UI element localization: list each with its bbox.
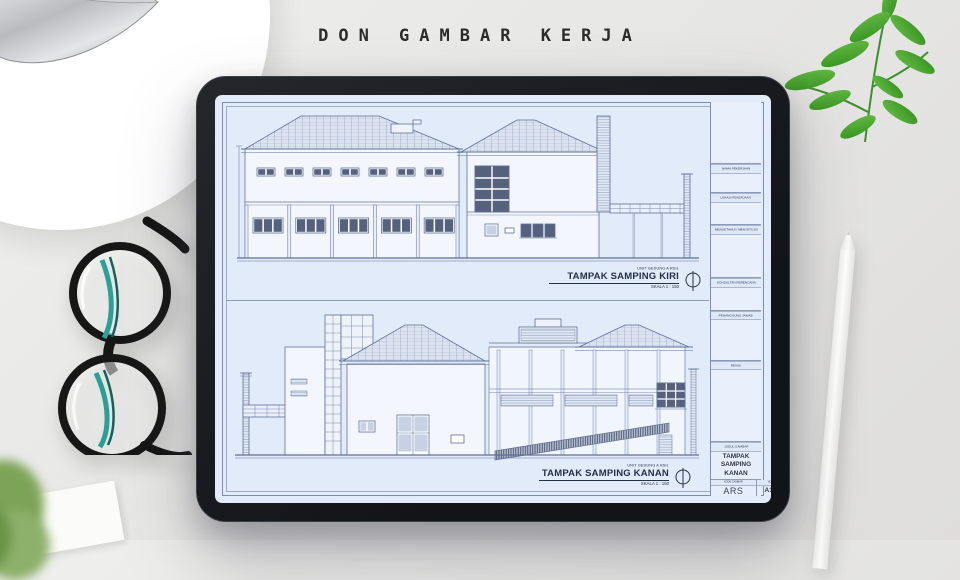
titleblock-label: NAMA PEKERJAAN bbox=[711, 164, 761, 174]
drawing-unit-text: UNIT GEDUNG A RSIL bbox=[598, 267, 679, 271]
drawing-unit-text: UNIT GEDUNG A RSIL bbox=[588, 464, 669, 468]
drawing-label-kanan: UNIT GEDUNG A RSIL TAMPAK SAMPING KANAN … bbox=[539, 463, 669, 488]
titleblock-label: PENANGGUNG JAWAB bbox=[711, 311, 761, 321]
leaf-branch-icon bbox=[770, 0, 960, 142]
succulent-plant bbox=[0, 450, 150, 570]
titleblock-label: KONSULTAN PERENCANA bbox=[711, 278, 761, 288]
sheet-divider bbox=[226, 300, 709, 301]
north-symbol-icon bbox=[673, 467, 693, 489]
no-lembar-value: A1-009 bbox=[757, 486, 771, 496]
glasses-icon bbox=[52, 205, 197, 455]
stylus-pen bbox=[812, 229, 857, 569]
tablet-screen[interactable]: UNIT GEDUNG A RSIL TAMPAK SAMPING KIRI S… bbox=[215, 95, 771, 503]
titleblock-label: JUDUL GAMBAR bbox=[711, 442, 761, 452]
titleblock-logo-box bbox=[711, 102, 761, 164]
titleblock: NAMA PEKERJAAN LOKASI PEKERJAAN MENGETAH… bbox=[710, 102, 761, 496]
titleblock-label: REVISI bbox=[711, 361, 761, 371]
kode-gambar-value: ARS bbox=[711, 486, 756, 496]
elevation-drawing-left-side bbox=[229, 108, 707, 270]
titleblock-drawing-title: TAMPAK SAMPING KANAN bbox=[711, 452, 761, 480]
north-symbol-icon bbox=[683, 270, 703, 292]
drawing-scale-text: SKALA 1 : 150 bbox=[575, 482, 669, 486]
titleblock-label: LOKASI PEKERJAAN bbox=[711, 193, 761, 203]
drawing-scale-text: SKALA 1 : 150 bbox=[585, 285, 679, 289]
drawing-title-text: TAMPAK SAMPING KANAN bbox=[539, 468, 669, 481]
elevation-drawing-right-side bbox=[229, 303, 707, 469]
titleblock-label: MENGETAHUI / MENYETUJUI bbox=[711, 225, 761, 235]
tablet-device: UNIT GEDUNG A RSIL TAMPAK SAMPING KIRI S… bbox=[196, 76, 790, 522]
drawing-label-kiri: UNIT GEDUNG A RSIL TAMPAK SAMPING KIRI S… bbox=[549, 266, 679, 291]
titleblock-bottom-row: KODE GAMBAR ARS NO. LEMBAR A1-009 bbox=[711, 480, 761, 496]
drawing-title-text: TAMPAK SAMPING KIRI bbox=[549, 271, 679, 284]
